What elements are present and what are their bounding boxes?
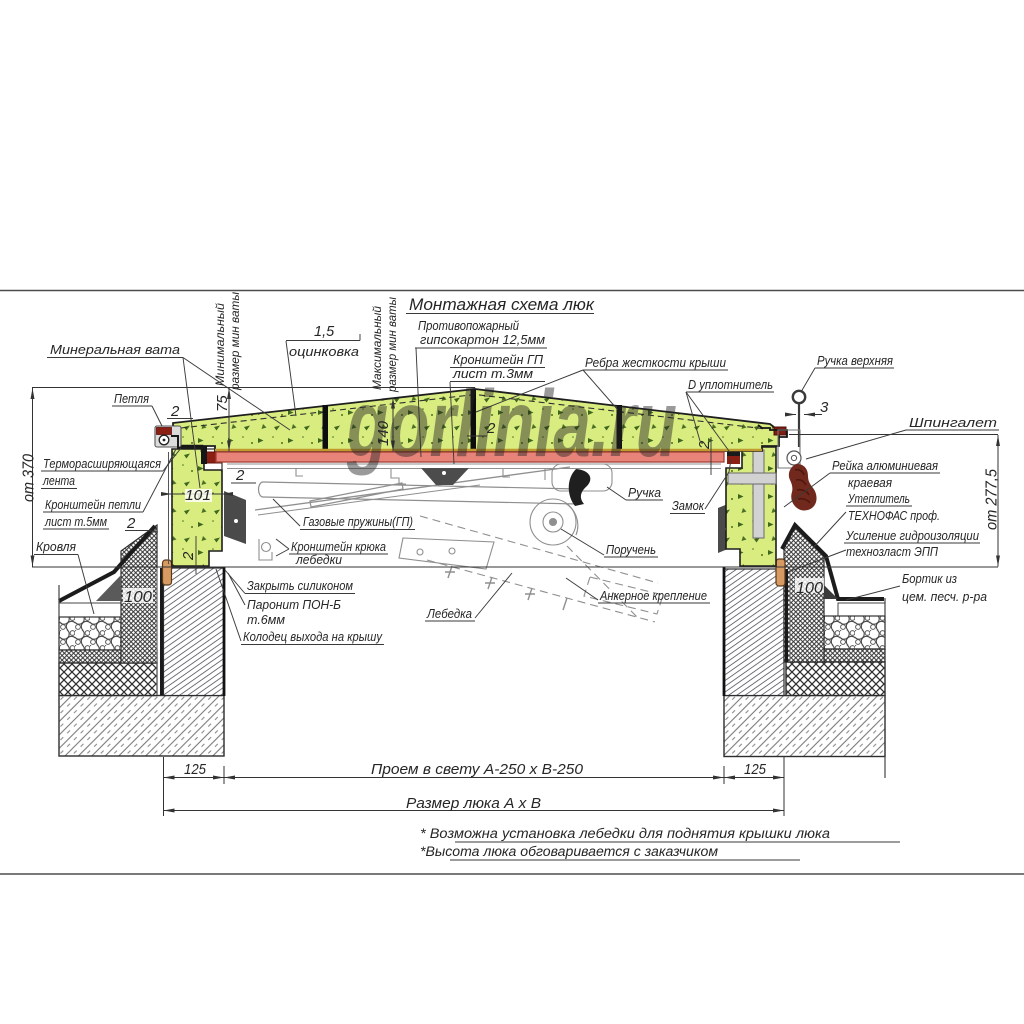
- svg-text:Усиление гидроизоляции: Усиление гидроизоляции: [845, 528, 979, 543]
- svg-text:Бортик из: Бортик из: [902, 571, 957, 586]
- svg-text:Размер люка А х В: Размер люка А х В: [406, 796, 541, 812]
- svg-text:100: 100: [796, 580, 823, 597]
- svg-text:Минеральная вата: Минеральная вата: [50, 342, 180, 357]
- svg-text:gorlinia.ru: gorlinia.ru: [346, 371, 677, 477]
- svg-text:Паронит ПОН-Б: Паронит ПОН-Б: [247, 597, 341, 612]
- svg-text:Кронштейн ГП: Кронштейн ГП: [453, 352, 544, 367]
- svg-text:2: 2: [696, 440, 713, 450]
- svg-text:Колодец выхода на крышу: Колодец выхода на крышу: [243, 629, 383, 644]
- svg-text:гипсокартон 12,5мм: гипсокартон 12,5мм: [420, 332, 545, 347]
- svg-text:Закрыть силиконом: Закрыть силиконом: [247, 578, 353, 593]
- svg-text:2: 2: [180, 551, 197, 561]
- svg-text:Замок: Замок: [672, 498, 705, 513]
- svg-text:цем. песч. р-ра: цем. песч. р-ра: [902, 589, 987, 604]
- svg-text:Кронштейн петли: Кронштейн петли: [45, 497, 141, 512]
- svg-text:75: 75: [214, 395, 231, 412]
- svg-text:Рейка алюминиевая: Рейка алюминиевая: [832, 458, 938, 473]
- svg-text:Утеплитель: Утеплитель: [847, 491, 910, 506]
- svg-text:Ручка: Ручка: [628, 485, 661, 500]
- svg-text:3: 3: [820, 399, 829, 416]
- svg-text:Терморасширяющаяся: Терморасширяющаяся: [43, 456, 161, 471]
- svg-text:т.6мм: т.6мм: [247, 612, 285, 627]
- svg-text:лист т.5мм: лист т.5мм: [44, 514, 107, 529]
- svg-text:125: 125: [744, 761, 767, 778]
- svg-text:оцинковка: оцинковка: [289, 344, 359, 359]
- svg-text:Шпингалет: Шпингалет: [909, 415, 997, 430]
- svg-text:2: 2: [170, 403, 180, 420]
- svg-text:от 370: от 370: [21, 454, 38, 502]
- svg-text:Противопожарный: Противопожарный: [418, 318, 519, 333]
- svg-text:краевая: краевая: [848, 475, 892, 490]
- svg-text:лебедки: лебедки: [295, 552, 342, 567]
- svg-text:Ребра жесткости крыши: Ребра жесткости крыши: [585, 355, 726, 370]
- svg-text:2: 2: [235, 467, 245, 484]
- svg-text:ТЕХНОФАС проф.: ТЕХНОФАС проф.: [848, 508, 940, 523]
- svg-text:* Возможна установка лебедки д: * Возможна установка лебедки для подняти…: [420, 826, 831, 841]
- svg-text:101: 101: [185, 487, 211, 504]
- svg-text:от 277,5: от 277,5: [984, 469, 1001, 530]
- svg-text:Петля: Петля: [114, 391, 149, 406]
- svg-text:Монтажная схема люк: Монтажная схема люк: [409, 296, 595, 314]
- svg-text:Поручень: Поручень: [606, 542, 656, 557]
- svg-text:2: 2: [126, 515, 136, 532]
- svg-text:100: 100: [124, 589, 152, 606]
- svg-text:Газовые пружины(ГП): Газовые пружины(ГП): [303, 514, 413, 529]
- svg-text:D уплотнитель: D уплотнитель: [688, 377, 773, 392]
- svg-text:Кровля: Кровля: [36, 539, 76, 554]
- svg-text:размер мин ваты: размер мин ваты: [228, 292, 242, 391]
- svg-text:Минимальный: Минимальный: [213, 303, 227, 386]
- svg-text:Ручка верхняя: Ручка верхняя: [817, 353, 893, 368]
- svg-text:Лебедка: Лебедка: [426, 606, 472, 621]
- svg-text:Проем в свету А-250 х В-250: Проем в свету А-250 х В-250: [371, 762, 583, 778]
- svg-text:лента: лента: [42, 473, 75, 488]
- svg-text:1,5: 1,5: [314, 324, 335, 340]
- svg-text:125: 125: [184, 761, 207, 778]
- svg-text:Анкерное крепление: Анкерное крепление: [599, 588, 707, 603]
- svg-text:технозласт ЭПП: технозласт ЭПП: [846, 544, 938, 559]
- svg-text:*Высота люка обговаривается с: *Высота люка обговаривается с заказчиком: [420, 844, 718, 859]
